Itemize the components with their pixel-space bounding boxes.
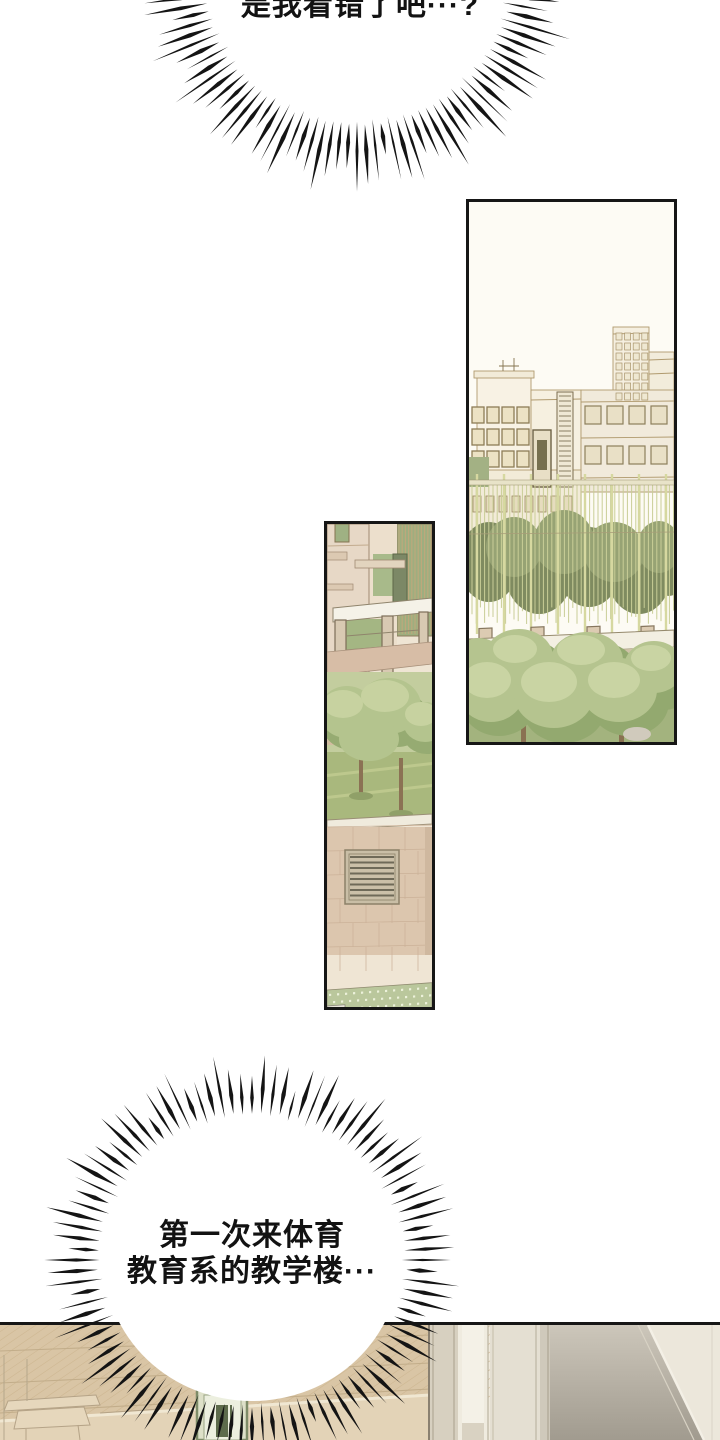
tree-row <box>469 629 674 742</box>
panel-art-narrow-view <box>327 524 432 1007</box>
comic-panel-hallway <box>0 1322 720 1440</box>
speech-text-bottom-line1: 第一次来体育 <box>2 1218 502 1254</box>
comic-page: 是我看错了吧···? 第一次来体育 教育系的教学楼··· <box>0 0 720 1440</box>
comic-panel-wide-view <box>466 199 677 745</box>
lawn-and-trees <box>327 672 432 824</box>
tiled-wall <box>327 814 432 971</box>
speech-text-top: 是我看错了吧···? <box>0 0 720 23</box>
speech-text-bottom-line2: 教育系的教学楼··· <box>2 1254 502 1290</box>
speech-text-bottom: 第一次来体育 教育系的教学楼··· <box>2 1218 502 1290</box>
panel-art-wide-view <box>469 202 674 742</box>
hall-sign <box>197 1388 247 1440</box>
hall-door-panels <box>429 1325 720 1440</box>
top-burst-bubble <box>141 0 579 192</box>
panel-art-hallway <box>0 1325 720 1440</box>
comic-panel-narrow-view <box>324 521 435 1010</box>
